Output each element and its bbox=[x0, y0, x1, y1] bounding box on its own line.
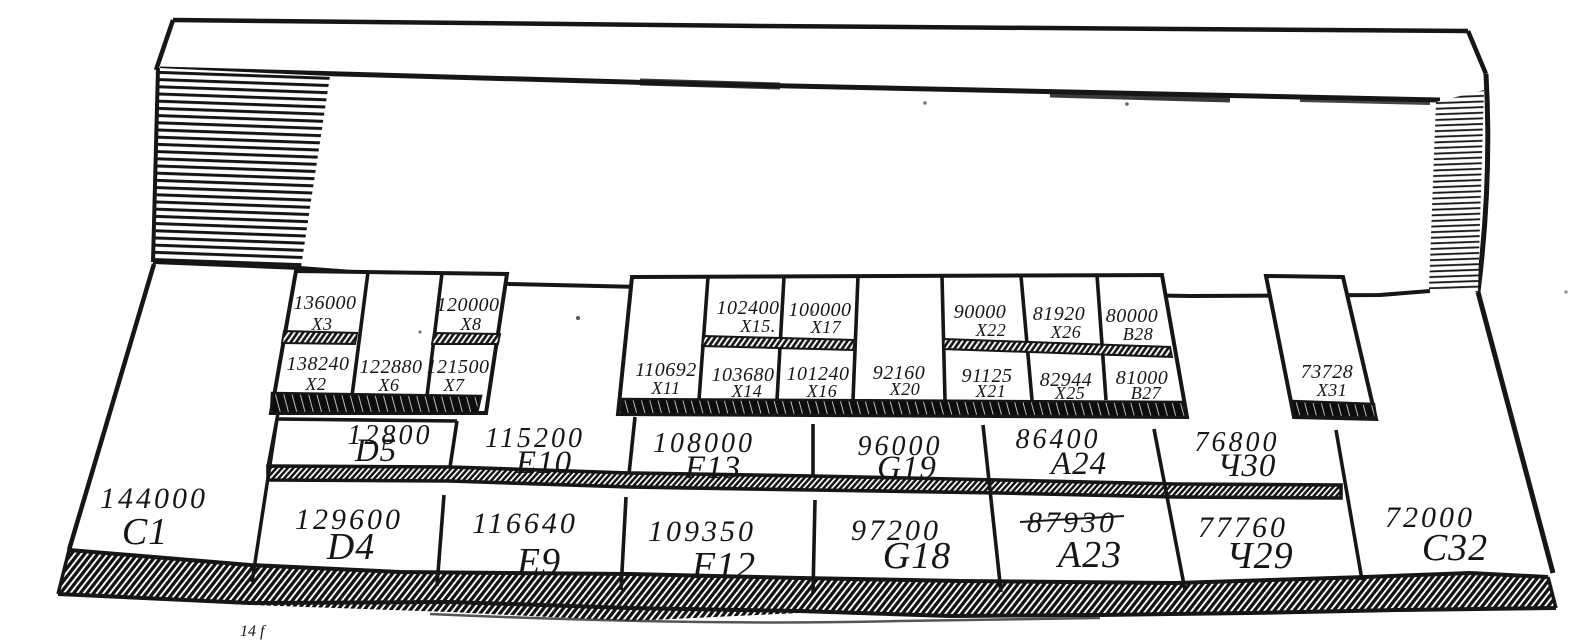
svg-text:X14: X14 bbox=[731, 381, 763, 401]
svg-text:116640: 116640 bbox=[472, 507, 578, 540]
svg-text:X15.: X15. bbox=[739, 316, 776, 336]
svg-text:X3: X3 bbox=[311, 314, 333, 334]
svg-text:F12: F12 bbox=[691, 545, 756, 587]
svg-text:C32: C32 bbox=[1422, 527, 1488, 569]
svg-text:X21: X21 bbox=[975, 381, 1007, 401]
svg-text:X11: X11 bbox=[650, 378, 680, 398]
svg-text:120000: 120000 bbox=[437, 294, 500, 316]
svg-text:X6: X6 bbox=[378, 375, 400, 395]
svg-text:G19: G19 bbox=[877, 450, 937, 486]
svg-text:D4: D4 bbox=[326, 526, 375, 568]
svg-text:G18: G18 bbox=[883, 535, 951, 577]
svg-text:X26: X26 bbox=[1050, 322, 1082, 342]
svg-text:A23: A23 bbox=[1055, 534, 1122, 576]
svg-text:C1: C1 bbox=[122, 511, 168, 553]
svg-text:D5: D5 bbox=[354, 433, 397, 469]
svg-text:E10: E10 bbox=[515, 445, 572, 481]
svg-text:138240: 138240 bbox=[287, 353, 350, 375]
svg-text:B28: B28 bbox=[1123, 324, 1154, 344]
svg-text:B27: B27 bbox=[1131, 383, 1162, 403]
svg-text:X16: X16 bbox=[806, 381, 838, 401]
svg-text:X20: X20 bbox=[889, 379, 921, 399]
svg-text:109350: 109350 bbox=[648, 515, 756, 548]
svg-text:F13: F13 bbox=[684, 450, 741, 486]
svg-text:X7: X7 bbox=[443, 375, 465, 395]
svg-text:E9: E9 bbox=[516, 541, 561, 583]
svg-text:A24: A24 bbox=[1049, 446, 1107, 482]
svg-text:14 f: 14 f bbox=[240, 623, 267, 640]
svg-text:X22: X22 bbox=[975, 320, 1007, 340]
svg-text:X17: X17 bbox=[810, 317, 842, 337]
svg-text:Ч30: Ч30 bbox=[1218, 448, 1277, 484]
svg-text:X8: X8 bbox=[460, 314, 482, 334]
svg-text:X31: X31 bbox=[1316, 380, 1348, 400]
svg-text:X2: X2 bbox=[305, 374, 327, 394]
svg-text:Ч29: Ч29 bbox=[1226, 535, 1293, 577]
svg-text:136000: 136000 bbox=[294, 292, 357, 314]
svg-text:X25: X25 bbox=[1054, 383, 1086, 403]
